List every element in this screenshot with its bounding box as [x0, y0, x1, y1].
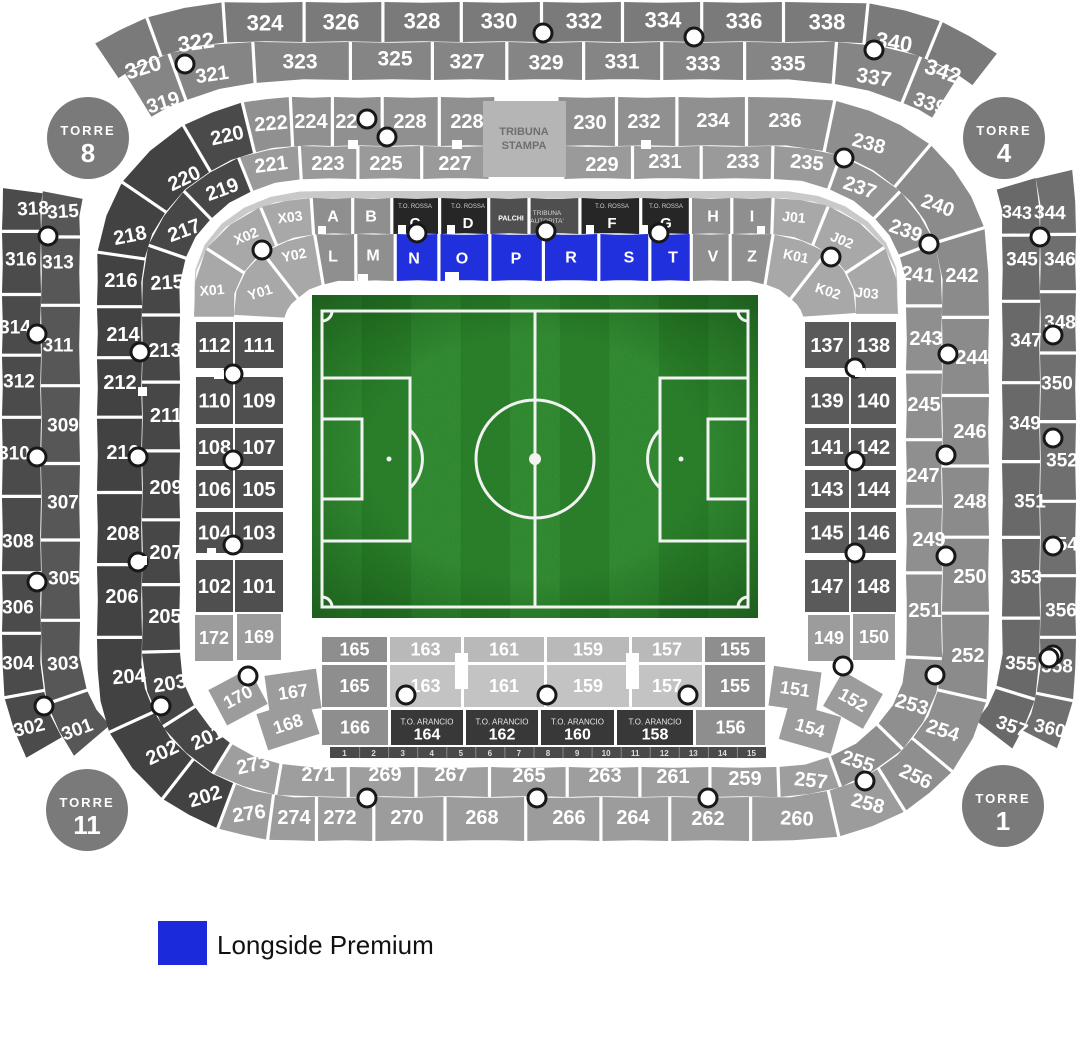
- svg-text:110: 110: [198, 391, 230, 413]
- svg-text:T.O. ARANCIO: T.O. ARANCIO: [401, 718, 454, 727]
- svg-text:263: 263: [588, 765, 621, 787]
- svg-text:144: 144: [857, 479, 891, 501]
- svg-text:P: P: [511, 251, 522, 268]
- svg-text:205: 205: [148, 606, 181, 628]
- svg-text:L: L: [328, 249, 338, 266]
- svg-text:355: 355: [1005, 653, 1038, 676]
- svg-text:J03: J03: [855, 284, 880, 302]
- svg-text:S: S: [624, 250, 635, 267]
- svg-text:105: 105: [242, 479, 275, 501]
- svg-text:T.O. ROSSA: T.O. ROSSA: [451, 204, 485, 210]
- svg-text:206: 206: [105, 586, 138, 608]
- svg-text:233: 233: [726, 151, 759, 173]
- svg-text:213: 213: [148, 340, 181, 362]
- svg-text:149: 149: [814, 628, 844, 648]
- svg-text:4: 4: [429, 749, 434, 758]
- svg-text:312: 312: [3, 372, 35, 393]
- svg-text:266: 266: [552, 807, 585, 829]
- svg-text:147: 147: [810, 576, 843, 598]
- svg-text:159: 159: [573, 676, 603, 696]
- svg-text:165: 165: [339, 676, 369, 696]
- svg-text:T.O. ARANCIO: T.O. ARANCIO: [476, 718, 529, 727]
- svg-text:1: 1: [342, 749, 347, 758]
- svg-text:259: 259: [728, 768, 761, 790]
- svg-text:15: 15: [747, 749, 756, 758]
- svg-text:245: 245: [907, 394, 940, 416]
- svg-text:T.O. ARANCIO: T.O. ARANCIO: [551, 718, 604, 727]
- svg-text:172: 172: [199, 628, 229, 648]
- svg-text:101: 101: [242, 576, 275, 598]
- svg-text:303: 303: [47, 653, 80, 676]
- svg-text:351: 351: [1014, 492, 1046, 513]
- svg-text:3: 3: [400, 749, 405, 758]
- svg-text:148: 148: [857, 576, 890, 598]
- svg-text:165: 165: [339, 640, 369, 660]
- svg-text:223: 223: [311, 153, 344, 175]
- svg-text:TORRE: TORRE: [60, 123, 115, 138]
- svg-text:265: 265: [512, 765, 545, 787]
- svg-text:TRIBUNA: TRIBUNA: [533, 210, 562, 217]
- svg-text:N: N: [408, 251, 420, 268]
- svg-text:305: 305: [48, 569, 80, 590]
- svg-text:J01: J01: [782, 208, 807, 226]
- svg-text:145: 145: [810, 523, 843, 545]
- svg-text:352: 352: [1046, 451, 1078, 472]
- svg-text:262: 262: [691, 808, 724, 830]
- svg-text:STAMPA: STAMPA: [502, 140, 547, 152]
- svg-text:TRIBUNA: TRIBUNA: [499, 126, 549, 138]
- svg-text:247: 247: [906, 465, 939, 487]
- svg-text:161: 161: [489, 676, 519, 696]
- svg-text:9: 9: [575, 749, 580, 758]
- svg-text:111: 111: [243, 335, 274, 357]
- svg-text:242: 242: [945, 265, 978, 287]
- svg-text:TORRE: TORRE: [976, 123, 1031, 138]
- svg-text:158: 158: [642, 727, 669, 744]
- svg-text:1: 1: [996, 806, 1010, 836]
- svg-text:269: 269: [368, 764, 401, 786]
- svg-text:227: 227: [438, 153, 471, 175]
- svg-text:7: 7: [517, 749, 522, 758]
- svg-text:150: 150: [859, 627, 889, 647]
- svg-text:260: 260: [780, 807, 814, 830]
- svg-text:316: 316: [5, 250, 37, 271]
- svg-text:155: 155: [720, 640, 750, 660]
- svg-text:204: 204: [112, 665, 148, 689]
- svg-text:H: H: [707, 209, 719, 226]
- svg-text:141: 141: [810, 437, 843, 459]
- svg-text:338: 338: [809, 10, 846, 35]
- svg-text:14: 14: [718, 749, 727, 758]
- svg-text:V: V: [708, 249, 719, 266]
- svg-text:T.O. ROSSA: T.O. ROSSA: [595, 204, 629, 210]
- svg-text:157: 157: [652, 676, 682, 696]
- svg-text:234: 234: [696, 110, 730, 132]
- svg-text:323: 323: [282, 50, 317, 73]
- svg-text:251: 251: [908, 600, 941, 622]
- svg-text:208: 208: [106, 523, 139, 545]
- svg-text:332: 332: [566, 9, 603, 34]
- svg-text:321: 321: [194, 62, 230, 88]
- svg-text:308: 308: [2, 532, 34, 553]
- svg-text:8: 8: [81, 138, 95, 168]
- svg-text:309: 309: [47, 416, 79, 437]
- svg-text:8: 8: [546, 749, 551, 758]
- svg-text:138: 138: [857, 335, 890, 357]
- svg-text:329: 329: [528, 51, 563, 74]
- svg-text:271: 271: [301, 764, 334, 786]
- svg-text:5: 5: [459, 749, 464, 758]
- svg-text:326: 326: [323, 10, 360, 35]
- svg-text:250: 250: [953, 566, 986, 588]
- svg-text:109: 109: [242, 391, 275, 413]
- svg-text:318: 318: [17, 198, 50, 220]
- svg-text:6: 6: [488, 749, 493, 758]
- svg-text:107: 107: [242, 437, 275, 459]
- svg-text:324: 324: [247, 11, 284, 36]
- svg-text:140: 140: [857, 391, 890, 413]
- svg-text:216: 216: [104, 270, 137, 292]
- svg-text:232: 232: [627, 111, 660, 133]
- svg-text:267: 267: [434, 764, 467, 786]
- svg-text:310: 310: [0, 444, 30, 465]
- svg-text:156: 156: [715, 718, 745, 738]
- svg-text:356: 356: [1045, 601, 1077, 622]
- svg-text:272: 272: [323, 807, 356, 829]
- svg-text:211: 211: [150, 405, 182, 427]
- svg-text:335: 335: [770, 52, 805, 75]
- svg-text:X01: X01: [199, 281, 225, 299]
- svg-text:244: 244: [955, 347, 989, 369]
- svg-text:333: 333: [685, 52, 720, 75]
- svg-text:350: 350: [1041, 374, 1073, 395]
- svg-text:228: 228: [450, 111, 483, 133]
- svg-text:M: M: [366, 248, 379, 265]
- svg-text:112: 112: [198, 335, 230, 357]
- svg-text:143: 143: [810, 479, 843, 501]
- svg-text:270: 270: [390, 807, 423, 829]
- svg-text:4: 4: [997, 138, 1012, 168]
- svg-text:PALCHI: PALCHI: [498, 215, 524, 222]
- svg-text:225: 225: [369, 153, 402, 175]
- svg-text:139: 139: [810, 391, 843, 413]
- svg-text:106: 106: [198, 479, 231, 501]
- svg-text:12: 12: [660, 749, 669, 758]
- svg-text:TORRE: TORRE: [59, 795, 114, 810]
- svg-text:O: O: [456, 251, 468, 268]
- svg-text:336: 336: [726, 9, 763, 34]
- svg-text:146: 146: [857, 523, 890, 545]
- svg-text:257: 257: [793, 768, 829, 794]
- svg-text:307: 307: [47, 493, 79, 514]
- svg-text:345: 345: [1006, 250, 1038, 271]
- svg-text:327: 327: [449, 50, 484, 73]
- svg-text:T.O. ARANCIO: T.O. ARANCIO: [629, 718, 682, 727]
- svg-text:D: D: [463, 215, 474, 232]
- svg-text:162: 162: [489, 727, 516, 744]
- svg-text:215: 215: [150, 271, 185, 295]
- svg-text:236: 236: [768, 110, 801, 132]
- svg-text:161: 161: [489, 640, 519, 660]
- svg-text:I: I: [750, 209, 754, 226]
- svg-text:103: 103: [242, 523, 275, 545]
- svg-text:10: 10: [602, 749, 611, 758]
- svg-text:230: 230: [573, 112, 606, 134]
- svg-text:11: 11: [73, 810, 101, 840]
- svg-text:331: 331: [604, 50, 639, 73]
- svg-text:306: 306: [2, 598, 34, 619]
- svg-text:164: 164: [414, 727, 441, 744]
- svg-text:343: 343: [1001, 201, 1032, 223]
- svg-text:228: 228: [393, 111, 426, 133]
- svg-text:R: R: [565, 250, 577, 267]
- svg-text:274: 274: [277, 807, 311, 829]
- svg-text:159: 159: [573, 640, 603, 660]
- svg-text:353: 353: [1010, 568, 1042, 589]
- svg-text:157: 157: [652, 640, 682, 660]
- svg-text:X03: X03: [277, 207, 304, 226]
- svg-text:Longside Premium: Longside Premium: [217, 930, 434, 960]
- svg-text:166: 166: [340, 718, 370, 738]
- svg-text:330: 330: [481, 9, 518, 34]
- svg-text:B: B: [365, 209, 377, 226]
- svg-text:212: 212: [103, 372, 136, 394]
- svg-text:264: 264: [616, 807, 650, 829]
- svg-text:243: 243: [909, 328, 942, 350]
- svg-text:221: 221: [253, 152, 289, 178]
- svg-text:151: 151: [779, 677, 812, 701]
- svg-text:F: F: [607, 215, 616, 232]
- svg-text:207: 207: [149, 542, 182, 564]
- svg-text:T.O. ROSSA: T.O. ROSSA: [649, 204, 683, 210]
- svg-text:252: 252: [951, 645, 984, 667]
- svg-text:241: 241: [900, 262, 935, 287]
- svg-text:344: 344: [1034, 202, 1067, 224]
- svg-text:102: 102: [198, 576, 231, 598]
- svg-text:209: 209: [149, 477, 182, 499]
- svg-text:311: 311: [43, 336, 74, 357]
- svg-text:TORRE: TORRE: [975, 791, 1030, 806]
- svg-text:322: 322: [176, 27, 216, 57]
- svg-text:349: 349: [1009, 414, 1041, 435]
- svg-text:347: 347: [1010, 331, 1042, 352]
- svg-text:231: 231: [648, 151, 681, 173]
- svg-text:2: 2: [371, 749, 376, 758]
- svg-text:155: 155: [720, 676, 750, 696]
- svg-text:304: 304: [2, 654, 34, 675]
- svg-text:313: 313: [42, 253, 74, 274]
- svg-text:163: 163: [410, 640, 440, 660]
- svg-text:315: 315: [47, 201, 80, 224]
- svg-text:261: 261: [656, 766, 689, 788]
- svg-text:248: 248: [953, 491, 986, 513]
- svg-text:328: 328: [404, 9, 441, 34]
- svg-text:235: 235: [789, 150, 824, 175]
- svg-text:224: 224: [294, 111, 328, 133]
- svg-text:346: 346: [1044, 250, 1076, 271]
- svg-text:246: 246: [953, 421, 986, 443]
- svg-text:T.O. ROSSA: T.O. ROSSA: [398, 204, 432, 210]
- svg-text:169: 169: [244, 627, 274, 647]
- svg-text:268: 268: [465, 807, 498, 829]
- svg-text:13: 13: [689, 749, 698, 758]
- svg-text:T: T: [668, 250, 678, 267]
- svg-text:325: 325: [377, 47, 412, 70]
- svg-text:160: 160: [564, 727, 591, 744]
- svg-text:314: 314: [0, 318, 31, 339]
- svg-text:11: 11: [631, 749, 640, 758]
- svg-text:A: A: [327, 209, 339, 226]
- svg-text:Z: Z: [747, 249, 757, 266]
- svg-text:137: 137: [810, 335, 843, 357]
- svg-text:334: 334: [645, 8, 682, 33]
- svg-text:229: 229: [585, 154, 618, 176]
- svg-text:222: 222: [254, 112, 289, 137]
